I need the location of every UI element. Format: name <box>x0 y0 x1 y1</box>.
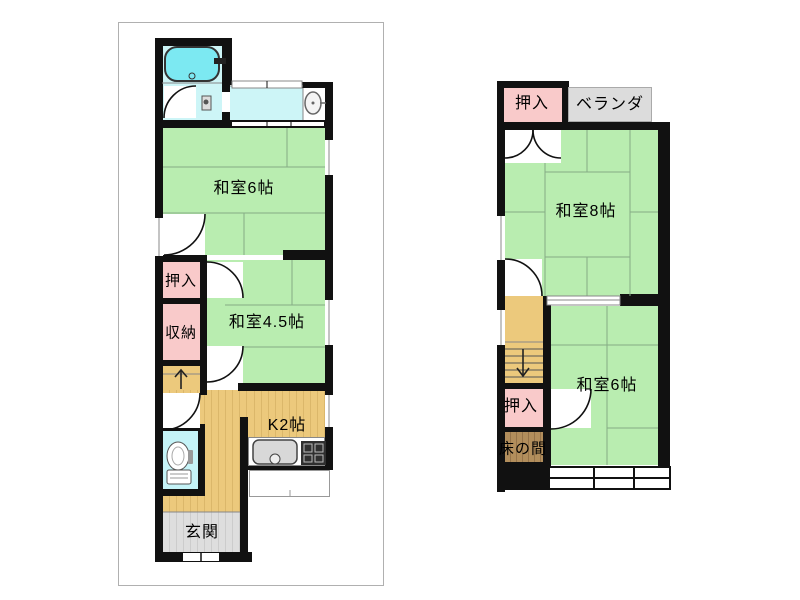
room-label-oshiire-2f-top: 押入 <box>515 96 549 112</box>
wall <box>620 294 670 306</box>
wall <box>238 383 333 391</box>
room-label-washitsu45: 和室4.5帖 <box>229 315 305 331</box>
kitchen-counter <box>248 437 325 466</box>
toilet-room <box>163 431 198 489</box>
wall <box>658 122 670 490</box>
wall <box>200 255 207 395</box>
wall <box>283 250 333 260</box>
wall <box>497 122 505 492</box>
wall <box>497 462 549 490</box>
stairs-2f <box>505 296 543 383</box>
room-label-washitsu6-2f: 和室6帖 <box>577 378 638 394</box>
room-label-washitsu8: 和室8帖 <box>556 204 617 220</box>
stairs-1f <box>163 366 200 390</box>
wall <box>325 120 333 470</box>
room-label-oshiire-1f: 押入 <box>165 274 197 289</box>
washroom-corridor <box>230 86 303 120</box>
room-label-kitchen: K2帖 <box>268 418 307 434</box>
wall <box>155 120 333 128</box>
floor-plan-canvas: 和室6帖 押入 収納 和室4.5帖 K2帖 玄関 押入 ベランダ 和室8帖 和室… <box>0 0 800 600</box>
wall <box>248 466 333 470</box>
wall <box>240 417 248 562</box>
wall <box>497 122 670 130</box>
room-label-tokonoma: 床の間 <box>499 442 547 457</box>
room-label-shunou: 収納 <box>165 326 197 341</box>
wall <box>155 38 232 46</box>
wall <box>222 38 232 85</box>
room-label-genkan: 玄関 <box>185 525 219 541</box>
room-label-veranda: ベランダ <box>576 97 644 113</box>
wall <box>500 383 545 389</box>
washroom <box>162 84 222 120</box>
entrance-porch <box>249 470 330 497</box>
room-label-washitsu6-1f: 和室6帖 <box>214 181 275 197</box>
wall <box>500 427 545 432</box>
wall <box>159 298 204 304</box>
room-label-oshiire-2f: 押入 <box>504 399 538 415</box>
bath-room <box>162 45 222 84</box>
wall <box>222 84 230 120</box>
basin-room <box>303 88 325 120</box>
wall <box>155 360 207 366</box>
wall <box>155 552 252 562</box>
